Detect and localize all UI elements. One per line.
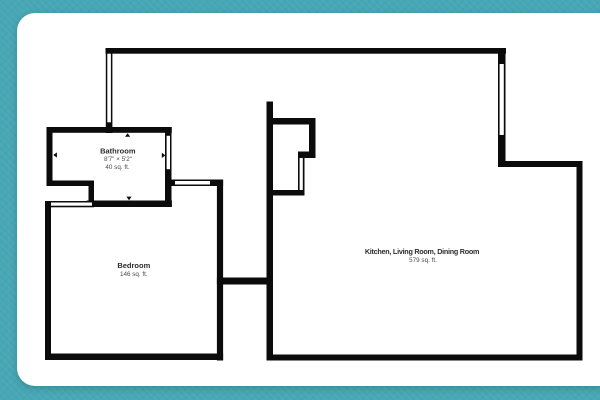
svg-text:579 sq. ft.: 579 sq. ft.	[409, 257, 437, 264]
svg-text:Bathroom: Bathroom	[100, 146, 136, 155]
svg-text:8'7" × 5'2": 8'7" × 5'2"	[104, 156, 132, 163]
svg-text:Kitchen, Living Room, Dining R: Kitchen, Living Room, Dining Room	[365, 247, 479, 256]
svg-text:Bedroom: Bedroom	[117, 261, 150, 270]
svg-text:146 sq. ft.: 146 sq. ft.	[120, 271, 148, 278]
svg-text:40 sq. ft.: 40 sq. ft.	[105, 164, 129, 171]
